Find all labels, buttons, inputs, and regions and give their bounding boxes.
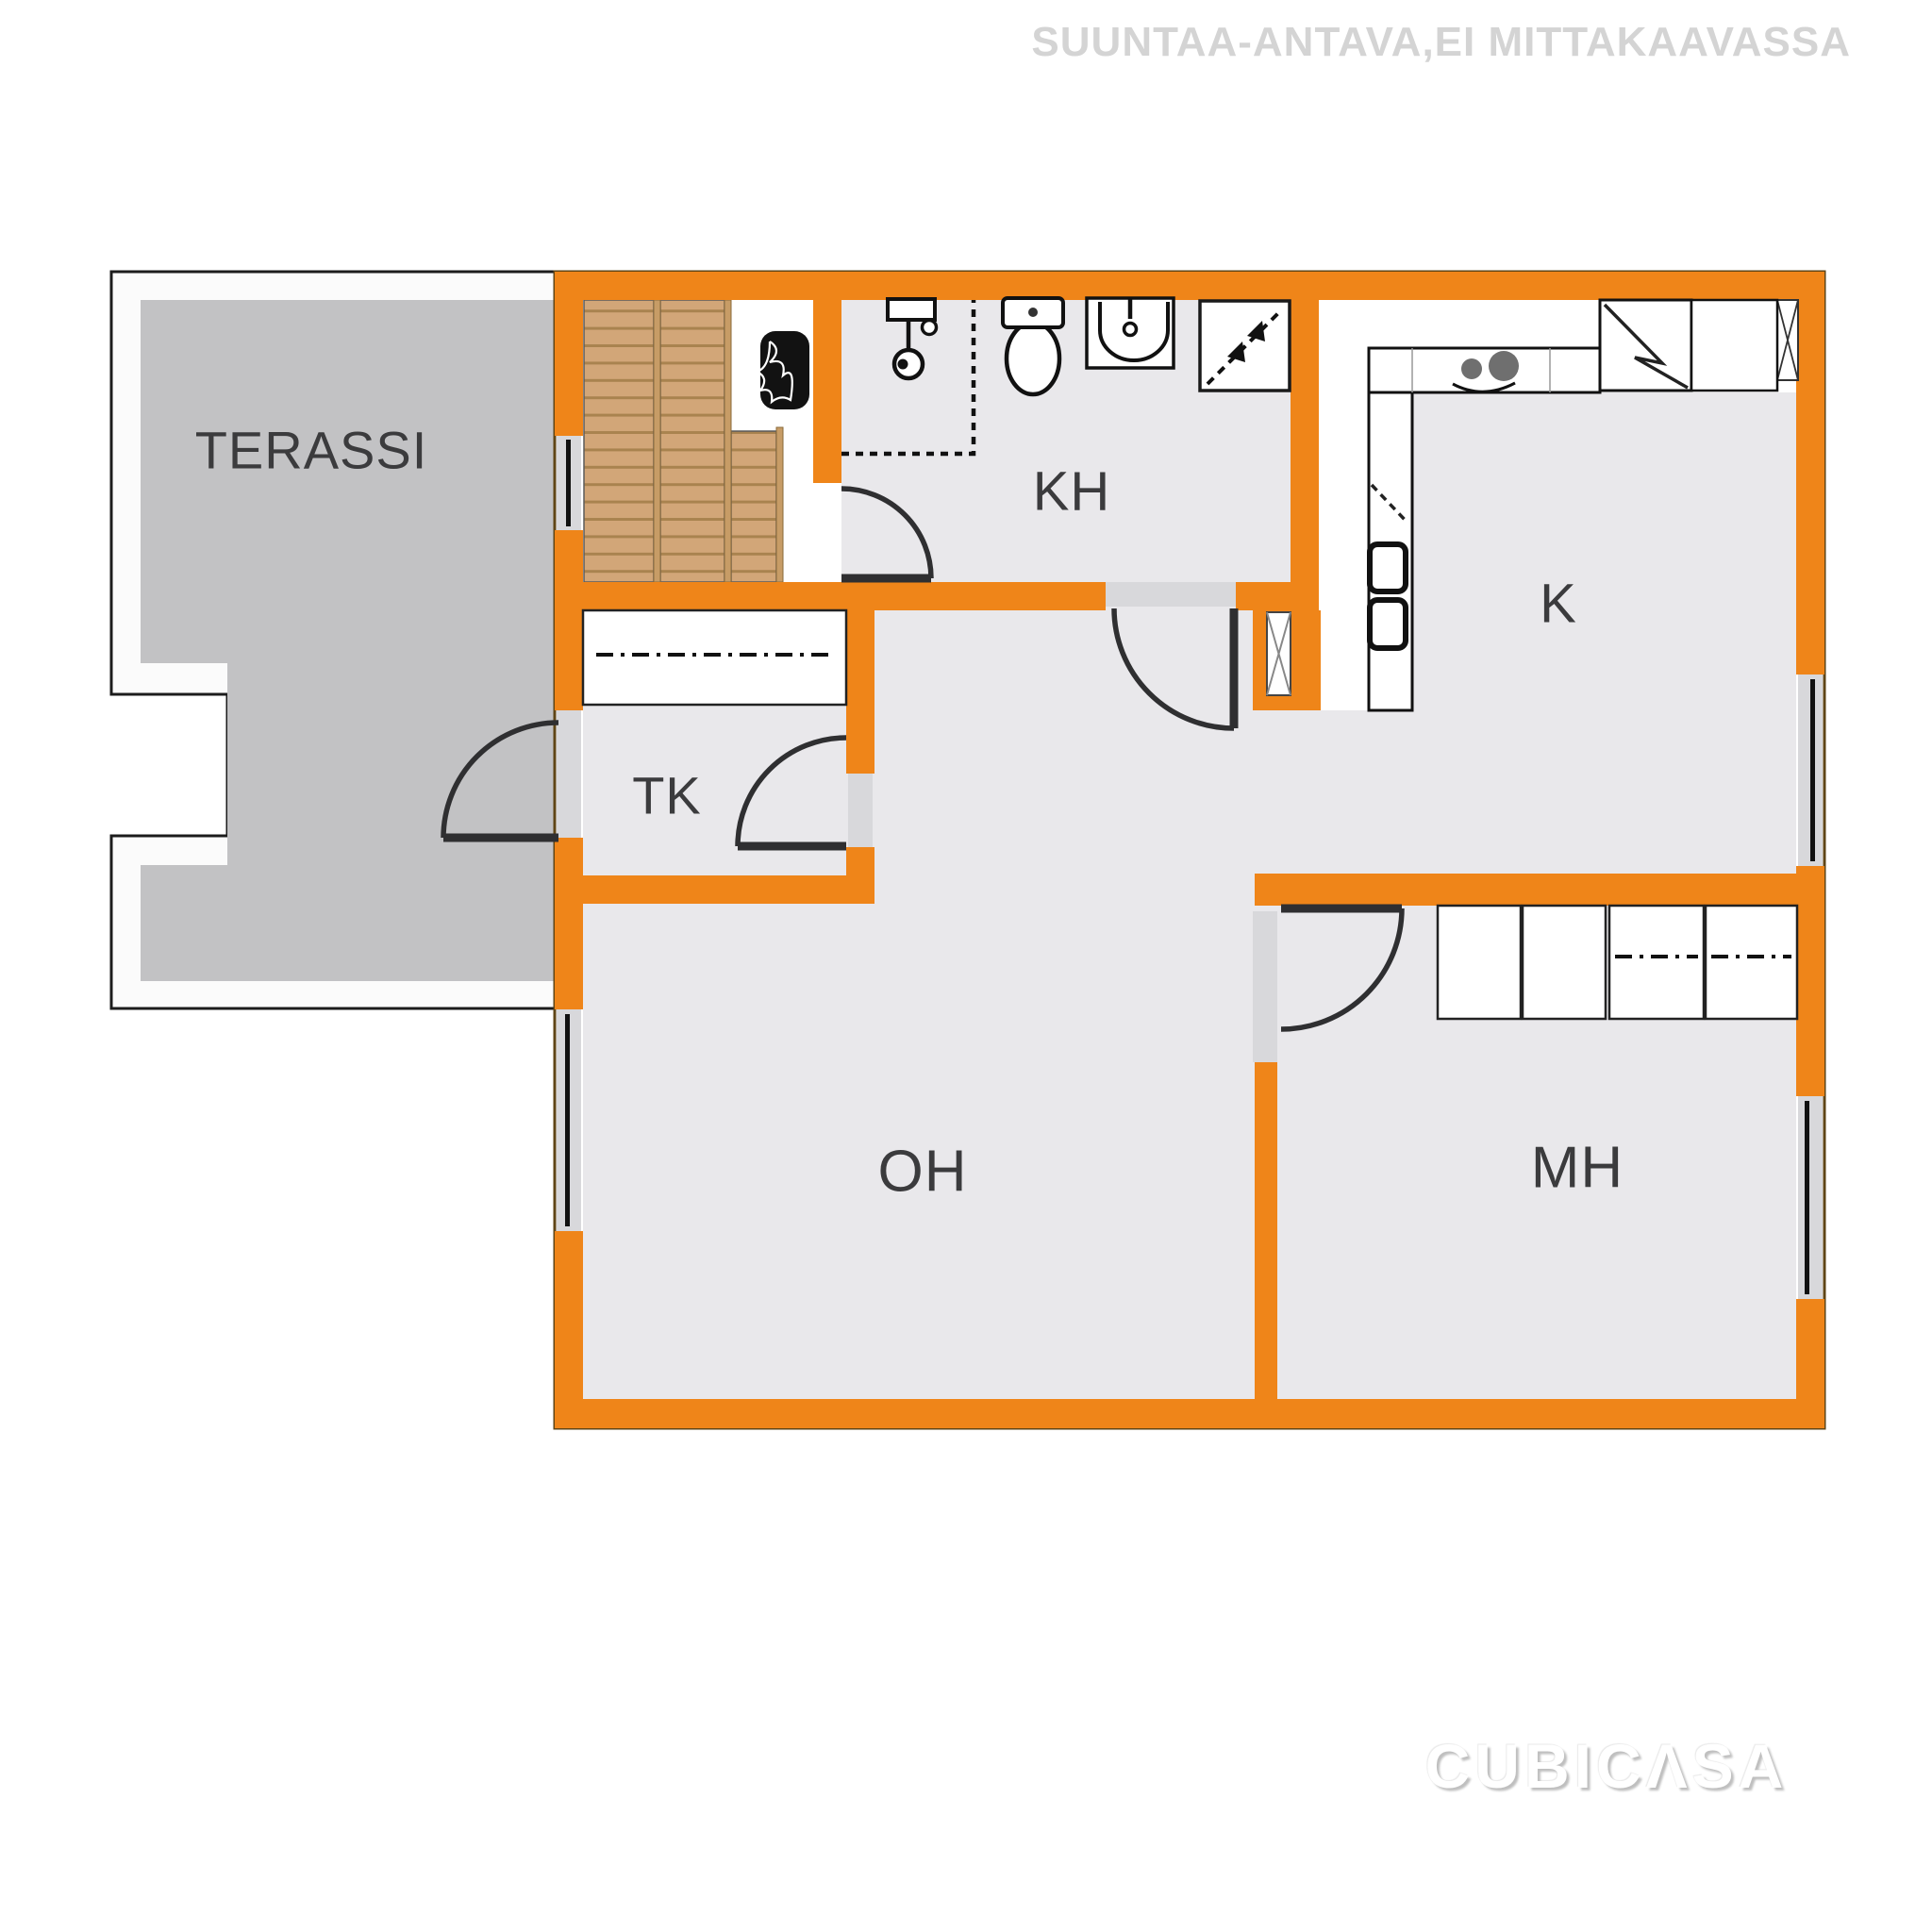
opening-hall-door [1106, 582, 1236, 607]
floorplan-drawing [0, 0, 1932, 1932]
disclaimer-text: SUUNTAA-ANTAVA,EI MITTAKAAVASSA [1031, 19, 1851, 66]
terrace-floor [141, 300, 555, 981]
terrace-deck [111, 272, 555, 1008]
kitchen-cabinet-plain [1691, 300, 1777, 391]
oven-icon [1370, 544, 1406, 591]
fridge-icon [1600, 300, 1691, 391]
room-label-oh: OH [878, 1139, 968, 1206]
room-label-k: K [1540, 573, 1577, 636]
shaft-kitchen-corner [1777, 300, 1798, 380]
wall-tk-bottom [555, 875, 874, 904]
opening-mh-door [1253, 911, 1277, 1062]
wall-mh-top [1255, 874, 1824, 906]
stair-flight-lower [731, 431, 776, 582]
wall-exterior-left-3 [555, 838, 583, 1009]
floorplan-page: SUUNTAA-ANTAVA,EI MITTAKAAVASSA TERASSI … [0, 0, 1932, 1932]
oven2-icon [1370, 600, 1406, 648]
sink-icon [1087, 298, 1174, 368]
chimney-shaft-hall [1267, 612, 1291, 695]
wall-exterior-left-1 [555, 272, 583, 436]
room-label-terassi: TERASSI [195, 420, 428, 481]
wall-mh-left [1255, 1062, 1277, 1399]
stair-stringer-2 [724, 300, 731, 582]
mh-wardrobes [1438, 906, 1797, 1019]
tk-closet [583, 610, 846, 705]
cubicasa-logo: CUBICΛSA [1425, 1730, 1789, 1802]
toilet-icon [1003, 298, 1063, 394]
opening-tk-door [848, 774, 873, 847]
stair-stringer-1 [654, 300, 660, 582]
wall-kh-bottom-left [555, 582, 1106, 610]
kitchen-counter-top [1369, 348, 1600, 392]
window-oh-left [557, 1009, 581, 1231]
window-stairhall-left [557, 436, 581, 530]
wall-exterior-right-1 [1796, 272, 1824, 675]
wall-exterior-top [555, 272, 1824, 300]
stair-flight-middle [660, 300, 724, 582]
room-label-kh: KH [1033, 460, 1111, 524]
room-label-mh: MH [1531, 1135, 1624, 1202]
wall-exterior-left-4 [555, 1231, 583, 1428]
stove-icon [757, 331, 809, 409]
wall-exterior-right-3 [1796, 1299, 1824, 1428]
opening-kh-door [813, 483, 841, 582]
shower-cabin-icon [1200, 301, 1290, 391]
window-kitchen-right [1798, 675, 1823, 866]
wall-exterior-left-2 [555, 530, 583, 710]
wall-exterior-bottom [555, 1399, 1824, 1428]
wall-kh-right [1291, 300, 1319, 610]
opening-terrace-door [557, 710, 581, 838]
stair-stringer-3 [776, 427, 783, 582]
window-mh-right [1798, 1096, 1823, 1299]
room-label-tk: TK [632, 765, 702, 826]
wall-stairhall-right [813, 300, 841, 483]
stair-flight-left [584, 300, 654, 582]
wall-tk-right-upper [846, 610, 874, 774]
